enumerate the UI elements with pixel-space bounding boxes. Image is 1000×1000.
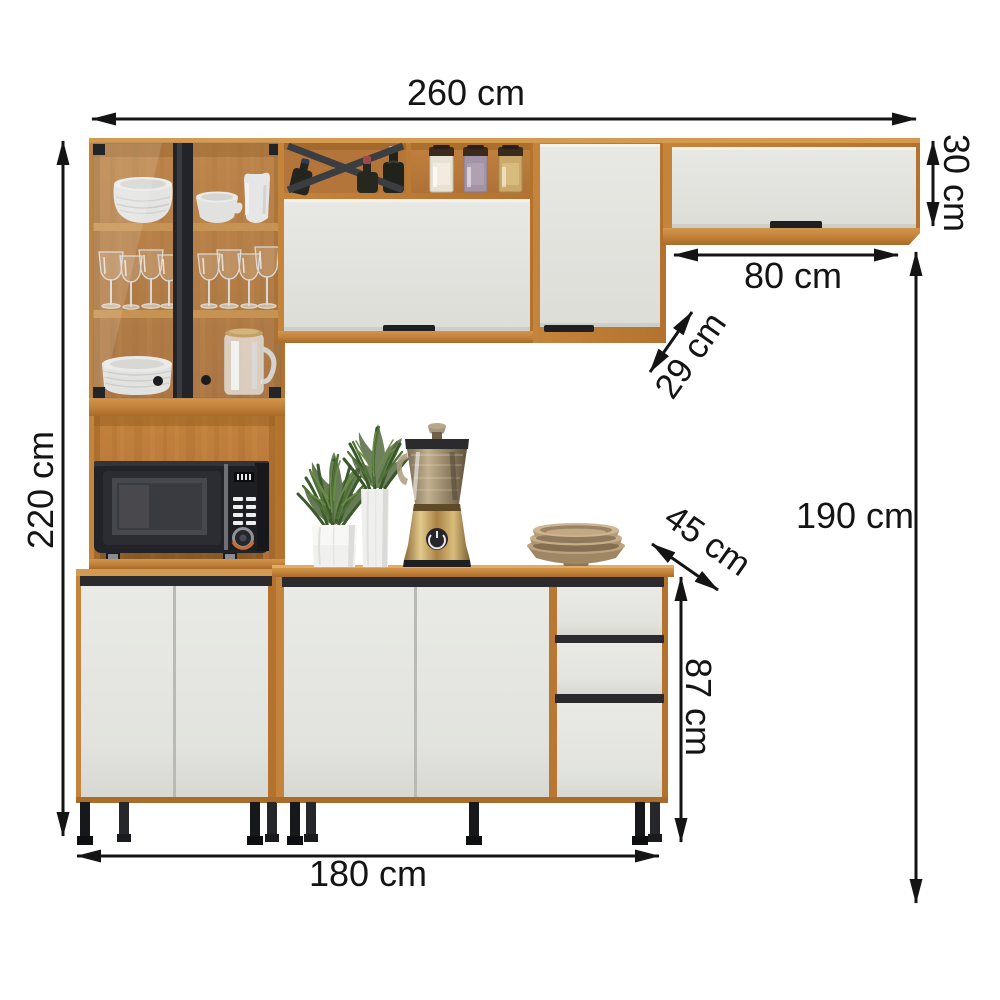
svg-text:220 cm: 220 cm [20, 431, 61, 549]
svg-text:260 cm: 260 cm [407, 72, 525, 113]
svg-text:87 cm: 87 cm [678, 658, 719, 756]
svg-text:30 cm: 30 cm [936, 134, 977, 232]
svg-text:80 cm: 80 cm [744, 255, 842, 296]
svg-text:180 cm: 180 cm [309, 853, 427, 894]
svg-text:190 cm: 190 cm [796, 495, 914, 536]
